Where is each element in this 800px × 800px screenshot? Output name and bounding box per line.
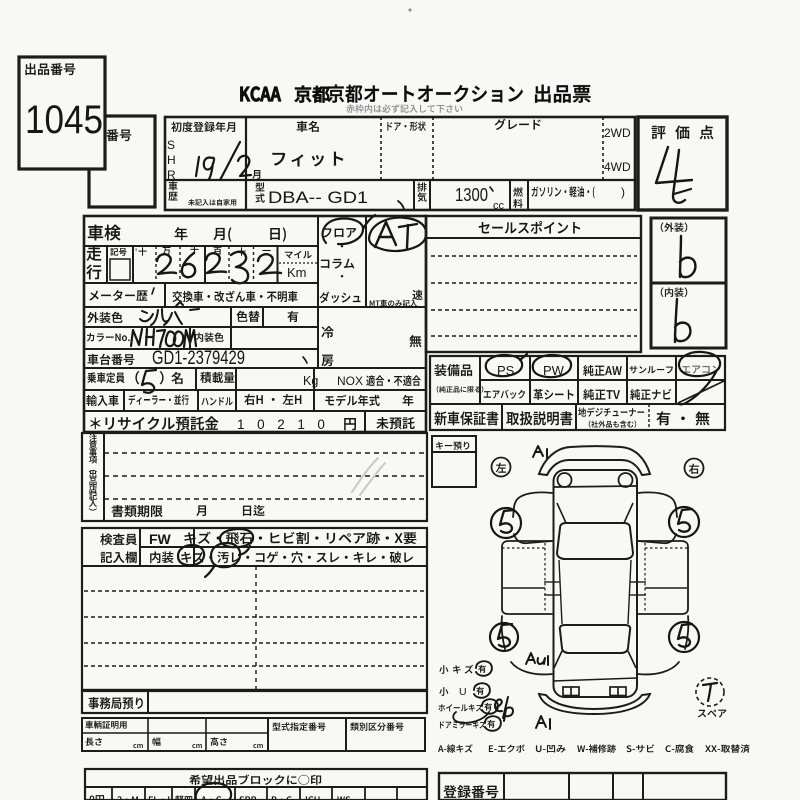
svg-text:): ) [621,185,625,199]
svg-text:4WD: 4WD [604,160,631,174]
svg-text:NOX: NOX [337,374,363,388]
svg-text:cc: cc [493,200,505,212]
svg-text:2WD: 2WD [604,126,631,140]
svg-text:Km: Km [287,265,307,280]
svg-text:S: S [167,138,175,152]
svg-text:1045: 1045 [25,98,103,142]
svg-text:R: R [167,168,176,182]
svg-text:Kg: Kg [303,374,318,388]
svg-text:1300: 1300 [455,185,488,205]
svg-text:DBA-- GD1: DBA-- GD1 [268,188,368,207]
svg-text:GD1-2379429: GD1-2379429 [152,348,245,369]
svg-text:FW: FW [149,531,172,547]
svg-text:H: H [167,153,176,167]
svg-text:10210: 10210 [237,417,338,432]
svg-text:U: U [459,686,467,698]
